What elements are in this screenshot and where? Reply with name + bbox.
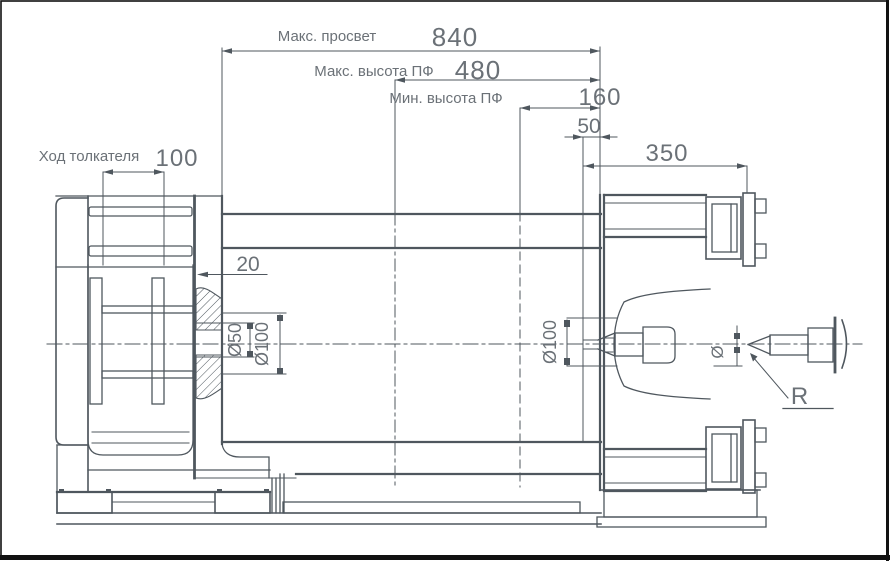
dim-sprue-diameter-symbol: Ø <box>708 345 727 358</box>
dim-nozzle-protrusion: 50 <box>565 115 617 140</box>
technical-drawing: Макс. просвет 840 Макс. высота ПФ 480 Ми… <box>0 0 890 561</box>
dim-max-mold-height-label: Макс. высота ПФ <box>314 63 433 80</box>
platen-plate-lower <box>743 420 755 493</box>
dim-min-mold-height-label: Мин. высота ПФ <box>389 90 502 107</box>
platen-plate-upper <box>743 193 755 266</box>
drawing-canvas: Макс. просвет 840 Макс. высота ПФ 480 Ми… <box>0 0 890 561</box>
ejector-plate-right <box>152 278 164 404</box>
section-hatch-upper <box>196 288 222 330</box>
platen-pedestal <box>604 490 757 517</box>
dim-max-mold-height: Макс. высота ПФ 480 <box>314 55 600 85</box>
dim-min-mold-height: Мин. высота ПФ 160 <box>389 84 621 111</box>
dim-ejector-stroke-label: Ход толкателя <box>39 148 140 165</box>
dim-ejector-stroke: Ход толкателя 100 <box>39 145 199 175</box>
dim-max-mold-height-value: 480 <box>455 55 501 85</box>
tie-bar-nut-upper <box>706 197 741 259</box>
dim-locating-hole-diameter: Ø100 <box>540 320 560 364</box>
tie-bar-nut-lower <box>706 427 741 489</box>
dim-ejector-hole-diameter: Ø100 <box>252 322 272 366</box>
extension-lines <box>395 80 747 487</box>
dim-ejector-stroke-value: 100 <box>155 145 198 172</box>
section-hatch-lower <box>196 355 222 399</box>
dim-max-clearance-value: 840 <box>432 22 478 52</box>
ejector-plate-left <box>90 278 102 404</box>
machine-foot-right <box>215 492 270 513</box>
dim-plate-offset: 20 <box>197 253 267 277</box>
dim-sprue: Ø <box>708 326 742 366</box>
machine-base <box>57 445 601 524</box>
ejector-rod-upper <box>102 306 193 313</box>
nozzle-retracted <box>748 318 847 372</box>
page-frame <box>0 0 890 561</box>
ejector-rod-lower <box>102 371 193 378</box>
dim-max-clearance: Макс. просвет 840 <box>222 22 600 54</box>
dim-nozzle-protrusion-value: 50 <box>577 115 600 138</box>
machine-foot-left <box>57 492 112 513</box>
dim-locating-hole: Ø100 <box>540 318 617 366</box>
nozzle-barrel-head <box>808 328 833 362</box>
dim-min-mold-height-value: 160 <box>578 84 621 111</box>
dim-nozzle-radius-value: R <box>791 383 809 410</box>
clamp-cylinder-assembly <box>56 172 222 492</box>
dim-platen-span-value: 350 <box>645 140 688 167</box>
nozzle-extended <box>583 327 675 363</box>
dim-max-clearance-label: Макс. просвет <box>278 28 377 45</box>
base-rail <box>283 502 580 513</box>
fixed-platen <box>597 47 766 527</box>
dim-plate-offset-value: 20 <box>236 253 259 276</box>
dim-ejector-rod-diameter: Ø50 <box>225 323 245 357</box>
dim-platen-span: 350 <box>584 140 747 169</box>
